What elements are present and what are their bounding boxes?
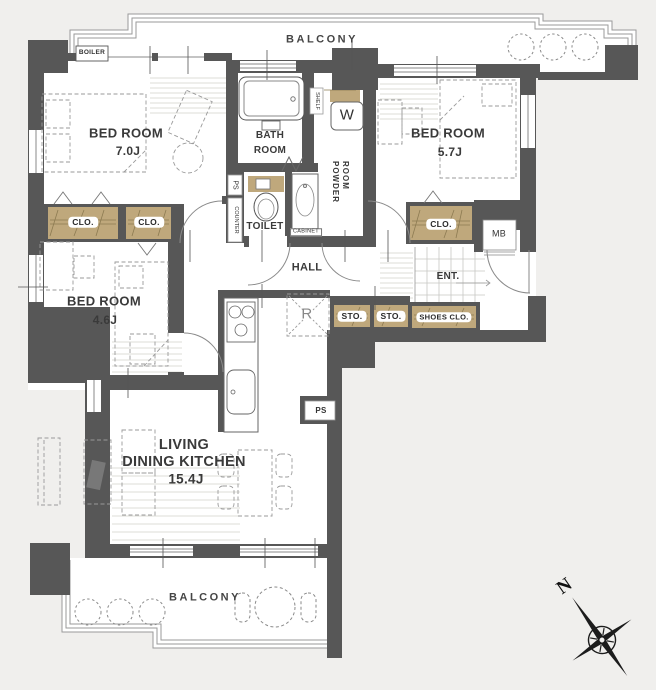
closet-a-label: CLO. bbox=[68, 217, 98, 228]
bedroom3-size: 4.6J bbox=[93, 314, 118, 326]
closet-b-label: CLO. bbox=[134, 217, 164, 228]
ps-top-label: PS bbox=[232, 180, 239, 189]
counter-label: COUNTER bbox=[232, 206, 238, 233]
balcony-bottom-label: BALCONY bbox=[169, 593, 241, 604]
shelf-label: SHELF bbox=[313, 92, 319, 110]
ldk-name-line1: LIVING bbox=[159, 438, 209, 453]
ps-right-label: PS bbox=[315, 407, 326, 415]
refrigerator-label: R bbox=[301, 307, 312, 322]
bedroom1-name: BED ROOM bbox=[89, 127, 163, 140]
bedroom2-name: BED ROOM bbox=[411, 127, 485, 140]
closet-c-label: CLO. bbox=[426, 219, 456, 230]
bathtub bbox=[239, 77, 304, 120]
cabinet-label: CABINET bbox=[290, 228, 322, 236]
washer-label: W bbox=[340, 108, 354, 123]
toilet-label: TOILET bbox=[246, 222, 283, 232]
shoes-closet-label: SHOES CLO. bbox=[416, 312, 471, 322]
bedroom1-size: 7.0J bbox=[116, 145, 141, 157]
bedroom3-name: BED ROOM bbox=[67, 295, 141, 308]
bathroom-label-line1: BATH bbox=[256, 131, 284, 141]
storage-a-label: STO. bbox=[338, 311, 367, 322]
ldk-size: 15.4J bbox=[168, 472, 203, 486]
toilet-bowl bbox=[254, 193, 278, 221]
sofa bbox=[38, 438, 60, 505]
floor-plan: N BALCONY BALCONY BOILER BED ROOM 7.0J B… bbox=[0, 0, 656, 690]
bathroom-label-line2: ROOM bbox=[254, 146, 286, 156]
hall-label: HALL bbox=[292, 263, 323, 274]
north-label: N bbox=[553, 574, 577, 599]
balcony-top-label: BALCONY bbox=[286, 35, 358, 46]
boiler-label: BOILER bbox=[79, 50, 105, 57]
powder-room-label: POWDER ROOM bbox=[331, 161, 349, 203]
floor-plan-drawing: N bbox=[0, 0, 656, 690]
compass: N bbox=[529, 557, 656, 690]
kitchen-fixtures bbox=[224, 298, 258, 432]
ldk-name-line2: DINING KITCHEN bbox=[122, 455, 245, 470]
storage-b-label: STO. bbox=[377, 311, 406, 322]
mb-label: MB bbox=[492, 230, 506, 239]
entrance-label: ENT. bbox=[437, 272, 460, 282]
bedroom2-size: 5.7J bbox=[438, 146, 463, 158]
